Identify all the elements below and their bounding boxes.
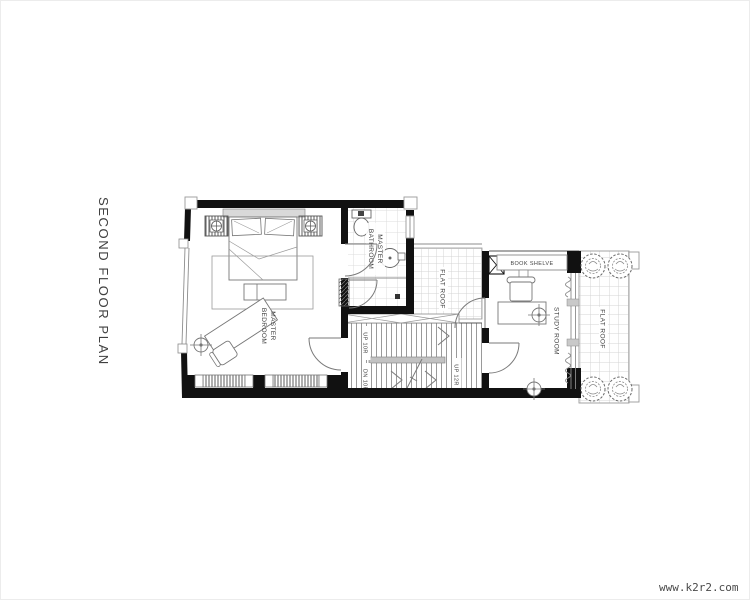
bedroom-left-window xyxy=(178,239,189,353)
nightstand-right xyxy=(299,216,322,236)
svg-text:FLAT ROOF: FLAT ROOF xyxy=(598,309,605,348)
svg-text:UP 12R: UP 12R xyxy=(453,364,459,386)
plant-icon xyxy=(608,254,632,278)
book-shelf: BOOK SHELVE xyxy=(497,255,567,278)
watermark: www.k2r2.com xyxy=(659,581,738,594)
study-door-swing xyxy=(489,343,519,373)
plumbing-chase xyxy=(339,279,349,306)
stair-handrail xyxy=(369,357,445,363)
plant-icon xyxy=(581,377,605,401)
stair-ledge xyxy=(343,314,459,323)
floor-plan-drawing: UP 10R DN 10R UP 12R xyxy=(1,1,750,600)
master-bathroom-label: MASTER BATHROOM xyxy=(366,223,385,275)
shower-head-icon xyxy=(395,294,400,299)
svg-text:FLAT ROOF: FLAT ROOF xyxy=(438,269,445,308)
svg-text:BOOK SHELVE: BOOK SHELVE xyxy=(510,261,553,267)
wall-corner-post-left xyxy=(185,197,197,209)
master-bedroom: MASTER BEDROOM xyxy=(190,209,322,368)
bed-bench xyxy=(244,284,286,300)
svg-text:UP 10R: UP 10R xyxy=(362,332,368,354)
svg-text:MASTER: MASTER xyxy=(269,311,276,341)
bed-headboard xyxy=(223,209,305,217)
curtain-squiggle xyxy=(566,277,571,297)
svg-text:STUDY ROOM: STUDY ROOM xyxy=(552,307,559,355)
staircase: UP 10R DN 10R UP 12R xyxy=(347,323,482,397)
floor-plan-page: SECOND FLOOR PLAN xyxy=(0,0,750,600)
svg-text:DN 10R: DN 10R xyxy=(362,369,368,391)
nightstand-left xyxy=(205,216,228,236)
bedroom-door-swing xyxy=(309,338,341,370)
study-chair xyxy=(507,277,535,301)
wall-corner-post-right xyxy=(404,197,417,209)
study-room: BOOK SHELVE STUDY ROOM xyxy=(489,255,579,400)
svg-text:BEDROOM: BEDROOM xyxy=(260,308,267,344)
flat-roof-middle-label: FLAT ROOF xyxy=(438,267,448,311)
study-room-label: STUDY ROOM xyxy=(552,307,559,355)
plant-icon xyxy=(608,377,632,401)
flat-roof-right-label: FLAT ROOF xyxy=(598,307,608,351)
plant-icon xyxy=(581,254,605,278)
